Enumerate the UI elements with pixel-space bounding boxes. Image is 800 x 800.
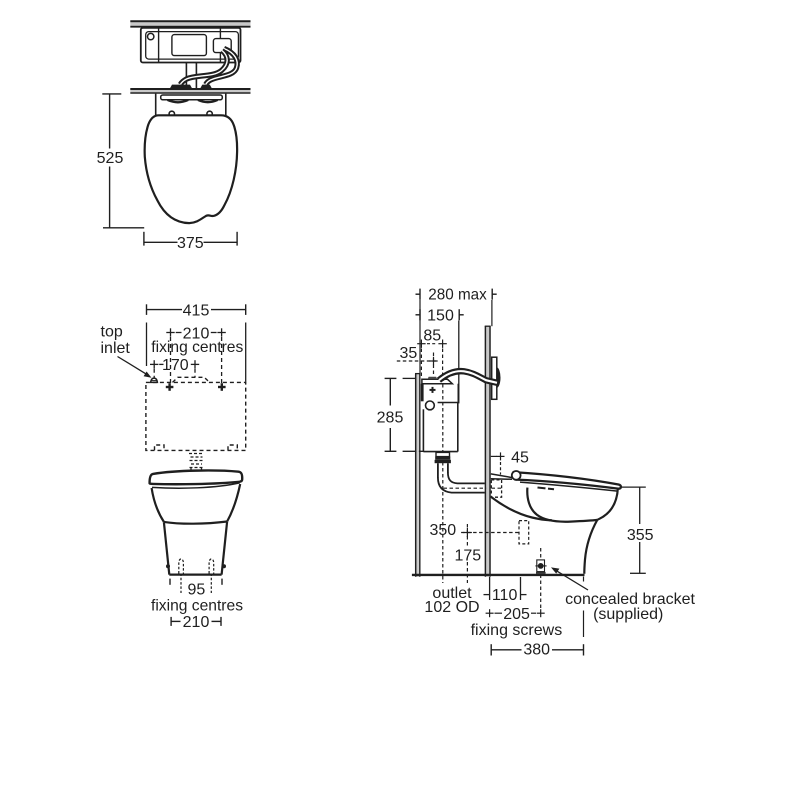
svg-text:102 OD: 102 OD xyxy=(424,599,479,616)
svg-text:85: 85 xyxy=(423,327,441,344)
svg-text:380: 380 xyxy=(523,642,550,659)
svg-text:top: top xyxy=(101,324,123,341)
svg-text:inlet: inlet xyxy=(101,340,131,357)
svg-text:285: 285 xyxy=(377,410,404,427)
svg-text:(supplied): (supplied) xyxy=(593,606,663,623)
svg-text:45: 45 xyxy=(511,450,529,467)
svg-text:205: 205 xyxy=(503,606,530,623)
svg-text:350: 350 xyxy=(429,522,456,539)
svg-text:95: 95 xyxy=(188,581,206,598)
svg-text:170: 170 xyxy=(162,357,189,374)
svg-text:415: 415 xyxy=(183,302,210,319)
svg-text:210: 210 xyxy=(183,614,210,631)
svg-text:fixing centres: fixing centres xyxy=(151,597,243,614)
svg-text:280 max: 280 max xyxy=(428,287,487,304)
svg-text:150: 150 xyxy=(427,308,454,325)
svg-text:525: 525 xyxy=(97,150,124,167)
svg-text:fixing centres: fixing centres xyxy=(151,339,243,356)
svg-text:110: 110 xyxy=(492,587,518,604)
svg-text:fixing screws: fixing screws xyxy=(471,622,563,639)
svg-text:375: 375 xyxy=(177,235,204,252)
svg-text:35: 35 xyxy=(400,345,418,362)
svg-text:175: 175 xyxy=(454,547,481,564)
svg-text:355: 355 xyxy=(627,527,654,544)
